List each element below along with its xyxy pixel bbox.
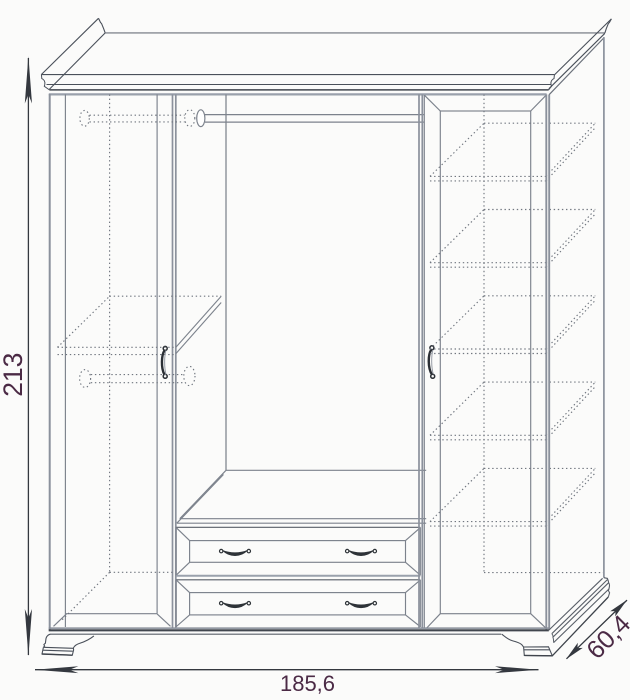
svg-text:185,6: 185,6 (280, 671, 335, 696)
svg-text:213: 213 (0, 353, 28, 397)
